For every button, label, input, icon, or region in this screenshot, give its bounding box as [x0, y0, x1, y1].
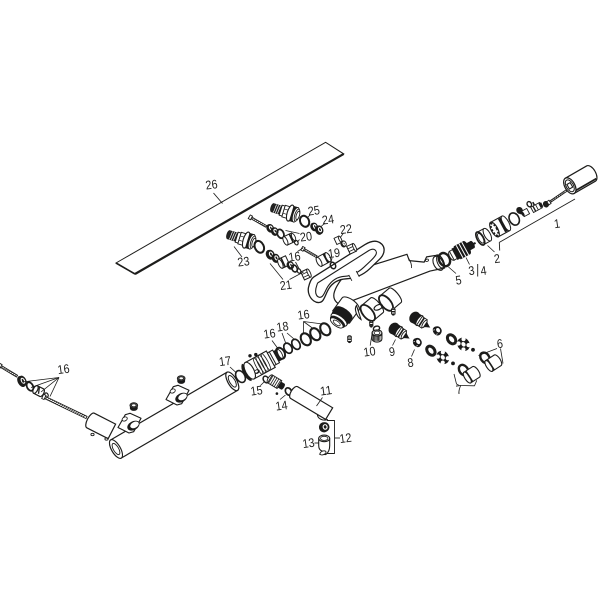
- svg-text:12: 12: [339, 431, 353, 447]
- svg-text:23: 23: [237, 254, 251, 270]
- svg-text:13: 13: [302, 436, 316, 452]
- svg-text:24: 24: [321, 212, 335, 228]
- svg-text:10: 10: [363, 344, 377, 360]
- svg-text:11: 11: [319, 383, 333, 399]
- svg-text:16: 16: [263, 326, 277, 342]
- svg-text:26: 26: [205, 177, 219, 193]
- svg-text:17: 17: [218, 354, 232, 370]
- svg-text:21: 21: [279, 278, 293, 294]
- svg-text:19: 19: [327, 246, 341, 262]
- svg-text:16: 16: [57, 362, 71, 378]
- svg-text:22: 22: [339, 222, 353, 238]
- svg-text:16: 16: [297, 307, 311, 323]
- svg-text:20: 20: [299, 229, 313, 245]
- svg-text:16: 16: [288, 249, 302, 265]
- svg-text:14: 14: [275, 398, 289, 414]
- svg-text:15: 15: [250, 383, 264, 399]
- svg-text:18: 18: [276, 319, 290, 335]
